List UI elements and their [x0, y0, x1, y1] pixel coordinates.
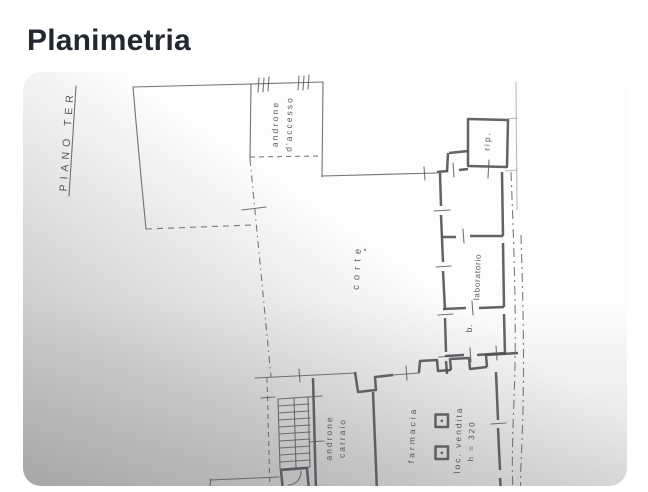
section-boundary-lines — [511, 172, 524, 486]
plan-label-androne-carraio-2: carraio — [337, 418, 348, 458]
page: Planimetria — [0, 0, 648, 492]
page-title: Planimetria — [27, 24, 191, 58]
plan-label-corte: corte — [351, 244, 364, 291]
plan-label-ripostiglio: rip. — [482, 131, 492, 151]
bottom-wing-wall — [255, 346, 518, 392]
plan-label-androne-carraio-1: androne — [324, 415, 335, 460]
plan-label-laboratorio: laboratorio — [472, 253, 483, 300]
plan-label-piano-terra: PIANO TER — [57, 90, 76, 192]
shop-rooms — [373, 372, 506, 486]
right-wing-rooms — [434, 163, 505, 374]
floorplan-drawing: PIANO TERandroned'accessorip.cortelabora… — [23, 72, 627, 486]
plan-label-androne-accesso-1: androne — [270, 101, 281, 148]
plan-label-androne-accesso-2: d'accesso — [284, 96, 295, 152]
plan-label-farmacia: farmacia — [406, 406, 418, 463]
plan-label-bagno: b. — [464, 323, 474, 332]
planimetria-image[interactable]: PIANO TERandroned'accessorip.cortelabora… — [23, 72, 627, 486]
plan-label-altezza: h = 320 — [466, 420, 476, 461]
courtyard-boundary — [133, 82, 366, 377]
staircase — [209, 378, 324, 486]
plan-label-locale-vendita: loc. vendita — [452, 406, 464, 473]
